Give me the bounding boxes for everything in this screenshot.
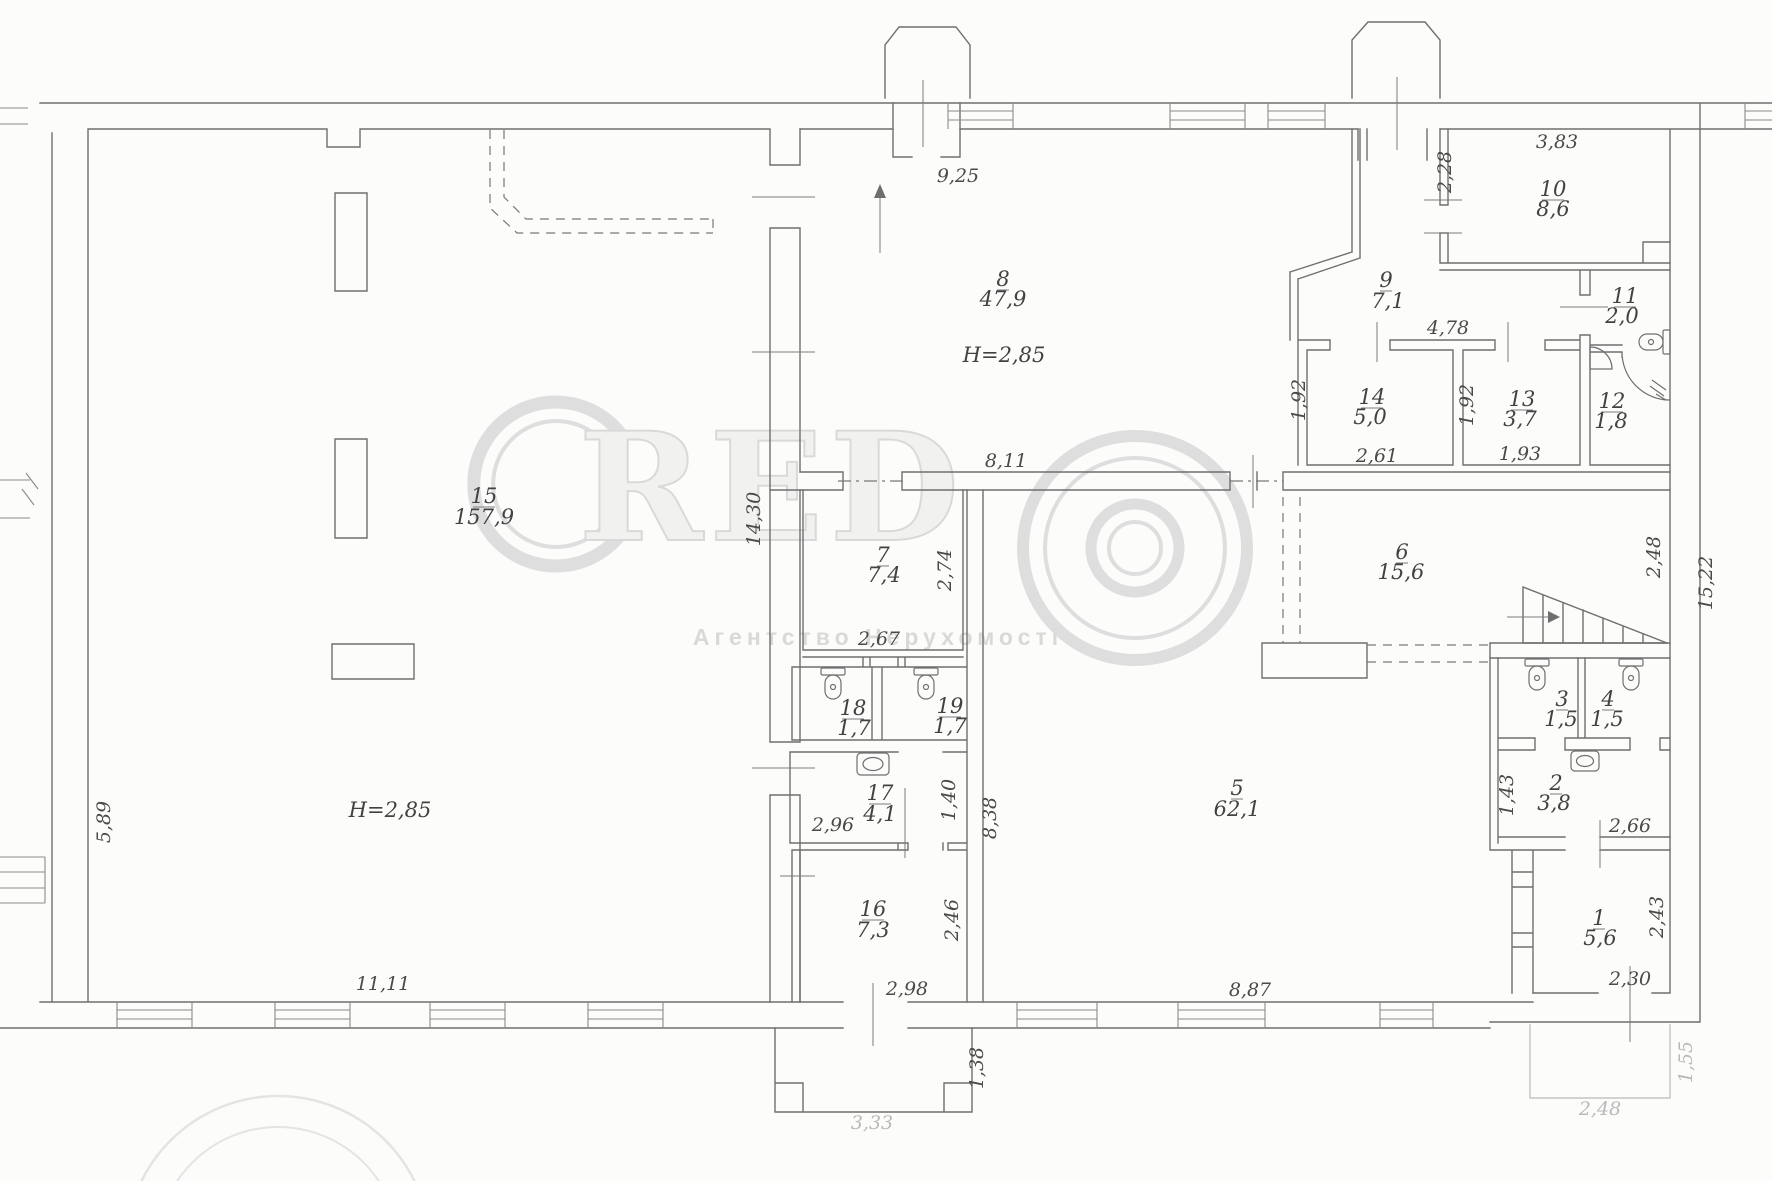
dim-label: 2,74 (934, 549, 956, 592)
dim-label: 8,11 (985, 450, 1027, 472)
left-neighbour-stubs (0, 108, 38, 518)
room-18-area: 1,7 (837, 716, 871, 740)
door-swing-arc-icon (1622, 352, 1670, 400)
room-14-area: 5,0 (1353, 405, 1386, 429)
entrance-arrow (874, 184, 886, 253)
room-1-area: 5,6 (1583, 926, 1616, 950)
dim-label: 3,83 (1536, 131, 1578, 153)
dim-label: 1,43 (1496, 774, 1518, 816)
dim-label: 2,67 (857, 628, 901, 650)
dashed-partitions (490, 130, 1490, 662)
stamp-icon (126, 1096, 430, 1181)
scanned-floor-plan-page: RED Агентство Нерухомості (0, 0, 1772, 1181)
dim-label: 2,43 (1646, 896, 1668, 939)
dim-label: 11,11 (356, 973, 410, 995)
sink-icon (857, 753, 889, 775)
credo-watermark: RED Агентство Нерухомості (474, 400, 1247, 660)
watermark-letters: RED (578, 400, 965, 576)
dim-label: 1,92 (1288, 379, 1310, 421)
walls-room5-room6 (1262, 643, 1670, 678)
dim-label: 1,92 (1456, 384, 1478, 426)
dim-label: 14,30 (743, 492, 765, 546)
dim-label: 1,40 (938, 779, 960, 821)
stair-outline (1523, 587, 1667, 643)
room-8-area: 47,9 (979, 287, 1027, 311)
floor-plan-svg: RED Агентство Нерухомості (0, 0, 1772, 1181)
dim-label: 1,93 (1499, 443, 1541, 465)
staircase (1507, 587, 1667, 643)
entrance-arrow-icon (874, 184, 886, 198)
room-4-area: 1,5 (1590, 707, 1623, 731)
height-note-room8: H=2,85 (962, 343, 1046, 367)
dim-label: 2,61 (1355, 445, 1398, 467)
toilet-icon (914, 668, 938, 699)
dim-label: 1,55 (1675, 1041, 1697, 1083)
toilet-icon (1619, 659, 1643, 690)
dim-label: 2,48 (1643, 536, 1665, 579)
room-6-area: 15,6 (1378, 560, 1425, 584)
room-5-area: 62,1 (1214, 797, 1261, 821)
dim-label: 8,38 (979, 797, 1001, 839)
room-11-area: 2,0 (1604, 304, 1638, 328)
dim-label: 4,78 (1426, 317, 1469, 339)
room-9-area: 7,1 (1371, 289, 1404, 313)
room-13-area: 3,7 (1503, 407, 1537, 431)
corner-sink-icon (1590, 347, 1612, 369)
dim-label: 2,66 (1608, 815, 1651, 837)
toilet-icon (1525, 659, 1549, 690)
dim-label: 2,30 (1608, 968, 1651, 990)
room-7-area: 7,4 (867, 563, 900, 587)
room-10-area: 8,6 (1536, 197, 1569, 221)
porch-bottom-right (1530, 1025, 1670, 1098)
room-17-area: 4,1 (862, 802, 896, 826)
dim-label: 15,22 (1695, 556, 1717, 610)
dim-label: 3,33 (851, 1112, 893, 1134)
dim-label: 2,46 (941, 899, 963, 942)
dim-label: 9,25 (937, 165, 979, 187)
dim-label: 8,87 (1229, 979, 1272, 1001)
toilet-icon (1639, 330, 1670, 354)
room-16-area: 7,3 (856, 918, 889, 942)
room-2-area: 3,8 (1537, 791, 1570, 815)
room-15-area: 157,9 (454, 505, 514, 529)
room-12-area: 1,8 (1594, 409, 1627, 433)
stair-arrow-icon (1548, 611, 1560, 623)
dim-label: 2,48 (1578, 1098, 1621, 1120)
sink-icon (1571, 751, 1599, 771)
dim-label: 2,28 (1434, 151, 1456, 194)
dim-label: 5,89 (93, 801, 115, 843)
room15-columns (332, 193, 414, 679)
height-note-room15: H=2,85 (348, 798, 432, 822)
room-19-area: 1,7 (933, 714, 967, 738)
room-3-area: 1,5 (1544, 707, 1577, 731)
toilet-icon (821, 668, 845, 699)
dim-label: 1,38 (966, 1047, 988, 1089)
dim-label: 2,98 (885, 978, 928, 1000)
dim-label: 2,96 (811, 814, 854, 836)
